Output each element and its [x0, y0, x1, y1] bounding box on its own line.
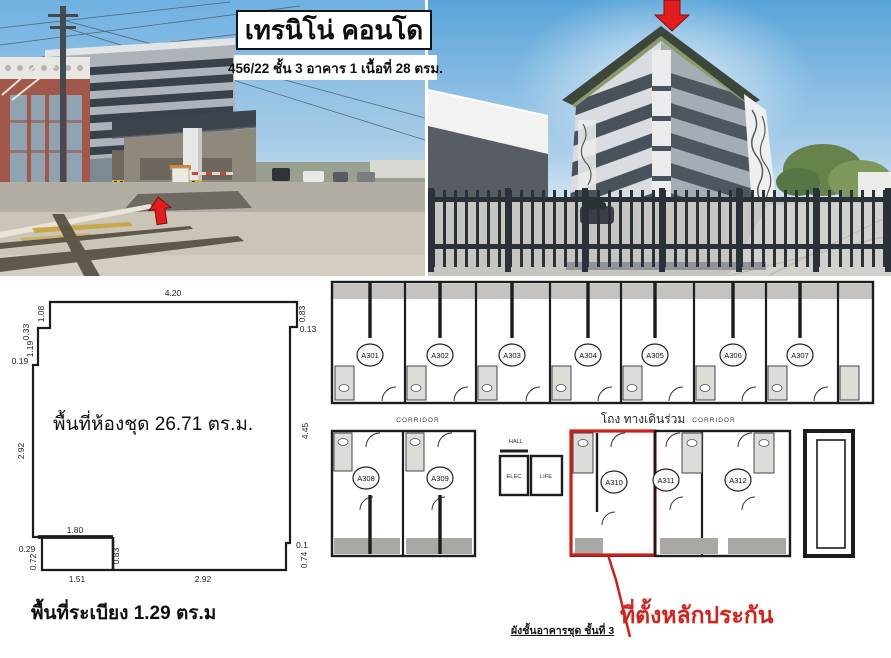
dimension-label: 0.19 — [12, 356, 29, 366]
room-label: A302 — [431, 351, 449, 360]
dimension-label: 0.72 — [28, 553, 38, 570]
dimension-label: 1.19 — [25, 340, 35, 357]
dimension-label: 0.83 — [297, 305, 307, 322]
room-area-label: พื้นที่ห้องชุด 26.71 ตร.ม. — [53, 410, 253, 436]
dimension-label: 1.80 — [67, 525, 84, 535]
room-label: A311 — [658, 476, 675, 485]
lift-label: LIFE — [540, 474, 552, 480]
dimension-label: 0.83 — [111, 547, 121, 564]
distant-white-wall — [370, 160, 425, 178]
balcony-area-label: พื้นที่ระเบียง 1.29 ตร.ม — [31, 598, 216, 624]
hall-label: HALL — [509, 439, 524, 445]
project-title: เทรนิโน่ คอนโด — [236, 10, 432, 50]
dimension-label: 0.13 — [300, 324, 317, 334]
brick-building — [0, 57, 90, 192]
building-floor-plan: A301 A302 A303 A304 A305 A306 A307 CORRI… — [330, 280, 891, 658]
dimension-label: 0.1 — [296, 540, 308, 550]
room-label-highlighted: A310 — [605, 478, 623, 487]
dimension-label: 4.20 — [165, 288, 182, 298]
elec-label: ELEC — [506, 474, 521, 480]
dimension-label: 1.51 — [69, 574, 86, 584]
unit-dimension-plan: 4.20 1.08 0.33 1.19 0.19 2.92 0.83 0.13 … — [5, 283, 325, 633]
floor-plan-top-row: A301 A302 A303 A304 A305 A306 A307 — [332, 282, 873, 403]
floor-plan-bottom-row: A308 A309 HALL ELEC LIFE A310 — [332, 431, 853, 556]
project-title-text: เทรนิโน่ คอนโด — [245, 10, 423, 51]
condo-building-scene — [428, 0, 891, 276]
top-room-labels: A301 A302 A303 A304 A305 A306 A307 — [357, 344, 813, 366]
dimension-label: 2.92 — [16, 442, 26, 459]
dimension-label: 0.74 — [299, 551, 309, 568]
dimension-label: 1.08 — [36, 305, 46, 322]
room-label: A309 — [431, 474, 449, 483]
room-label: A305 — [646, 351, 664, 360]
room-label: A308 — [357, 474, 375, 483]
dimension-label: 4.45 — [300, 422, 310, 439]
dimension-labels: 4.20 1.08 0.33 1.19 0.19 2.92 0.83 0.13 … — [12, 288, 317, 584]
address-line: 456/22 ชั้น 3 อาคาร 1 เนื้อที่ 28 ตรม. — [234, 55, 437, 80]
boom-barrier — [189, 172, 233, 175]
corridor-label-left: CORRIDOR — [396, 417, 439, 424]
room-label: A304 — [579, 351, 597, 360]
room-label: A301 — [361, 351, 379, 360]
corridor-thai-label: โถง ทางเดินร่วม — [601, 412, 686, 426]
address-text: 456/22 ชั้น 3 อาคาร 1 เนื้อที่ 28 ตรม. — [228, 57, 443, 79]
room-label: A306 — [724, 351, 742, 360]
room-label: A303 — [503, 351, 521, 360]
corridor-label-right: CORRIDOR — [692, 417, 735, 424]
dimension-label: 0.33 — [21, 323, 31, 340]
room-label: A312 — [729, 476, 747, 485]
dimension-label: 0.29 — [19, 544, 36, 554]
property-flyer: เทรนิโน่ คอนโด 456/22 ชั้น 3 อาคาร 1 เนื… — [0, 0, 891, 658]
stairwell — [805, 431, 853, 556]
floor-plan-caption: ผังชั้นอาคารชุด ชั้นที่ 3 — [511, 622, 614, 639]
collateral-location-label: ที่ตั้งหลักประกัน — [620, 598, 773, 634]
top-row-bathrooms — [335, 366, 859, 401]
condo-building-photo — [428, 0, 891, 276]
room-label: A307 — [791, 351, 809, 360]
dimension-label: 2.92 — [195, 574, 212, 584]
